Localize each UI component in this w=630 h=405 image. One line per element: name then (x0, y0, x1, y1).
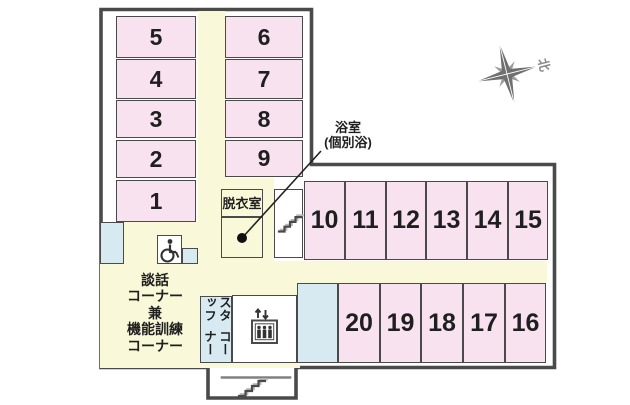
room-14: 14 (467, 181, 508, 260)
room-6-label: 6 (258, 26, 271, 49)
room-10: 10 (304, 181, 345, 260)
room-11: 11 (345, 181, 386, 260)
room-20: 20 (338, 283, 380, 363)
lounge-corner-label: 談話 コーナー 兼 機能訓練 コーナー (100, 272, 210, 354)
room-20-label: 20 (345, 311, 373, 336)
room-7-label: 7 (258, 68, 271, 91)
staff-line-2: コーナー (201, 330, 231, 364)
room-2-label: 2 (150, 148, 163, 171)
utility-box-small (182, 248, 198, 264)
accessible-toilet (157, 235, 182, 264)
lounge-line-1: 談話 (100, 272, 210, 288)
room-5-label: 5 (150, 26, 163, 49)
room-3: 3 (116, 100, 196, 138)
room-9: 9 (225, 140, 303, 177)
room-18-label: 18 (428, 311, 456, 336)
bath-callout-label: 浴室 (個別浴) (312, 120, 384, 150)
room-15: 15 (508, 181, 548, 260)
room-11-label: 11 (352, 208, 378, 233)
room-14-label: 14 (474, 208, 502, 233)
room-8-label: 8 (258, 108, 271, 131)
room-12-label: 12 (392, 208, 420, 233)
room-18: 18 (421, 283, 463, 363)
room-10-label: 10 (311, 208, 339, 233)
lounge-line-5: コーナー (100, 338, 210, 354)
bath-label-line1: 浴室 (312, 120, 384, 135)
dressing-room-label: 脱衣室 (222, 197, 261, 210)
room-2: 2 (116, 140, 196, 178)
room-17: 17 (463, 283, 505, 363)
room-1-label: 1 (150, 190, 163, 213)
room-7: 7 (225, 59, 303, 99)
lounge-line-3: 兼 (100, 305, 210, 321)
floor-plan: 5432167891011121314152019181716脱衣室 浴室 (個… (0, 0, 630, 405)
bath-room (221, 217, 263, 258)
room-19: 19 (380, 283, 421, 363)
lounge-line-2: コーナー (100, 288, 210, 304)
room-4-label: 4 (150, 68, 163, 91)
room-8: 8 (225, 100, 303, 138)
utility-room-left (100, 222, 124, 264)
bath-label-line2: (個別浴) (312, 135, 384, 150)
room-19-label: 19 (387, 311, 415, 336)
room-16: 16 (505, 283, 546, 363)
room-17-label: 17 (470, 311, 498, 336)
stairwell-room (274, 189, 303, 258)
room-4: 4 (116, 59, 196, 99)
room-6: 6 (225, 16, 303, 58)
elevator-room (232, 295, 297, 363)
room-12: 12 (386, 181, 426, 260)
room-13-label: 13 (433, 208, 461, 233)
room-13: 13 (426, 181, 467, 260)
utility-room-bottom (297, 283, 338, 363)
room-5: 5 (116, 16, 196, 58)
room-9-label: 9 (258, 147, 271, 170)
room-15-label: 15 (514, 208, 542, 233)
dressing-room: 脱衣室 (221, 189, 263, 217)
rooms-layer: 5432167891011121314152019181716脱衣室 (0, 0, 630, 405)
room-1: 1 (116, 180, 196, 222)
staff-line-1: スタッフ (201, 296, 231, 330)
room-3-label: 3 (150, 108, 163, 131)
staff-corner-label: スタッフコーナー (200, 296, 232, 363)
lounge-line-4: 機能訓練 (100, 321, 210, 337)
room-16-label: 16 (512, 311, 540, 336)
